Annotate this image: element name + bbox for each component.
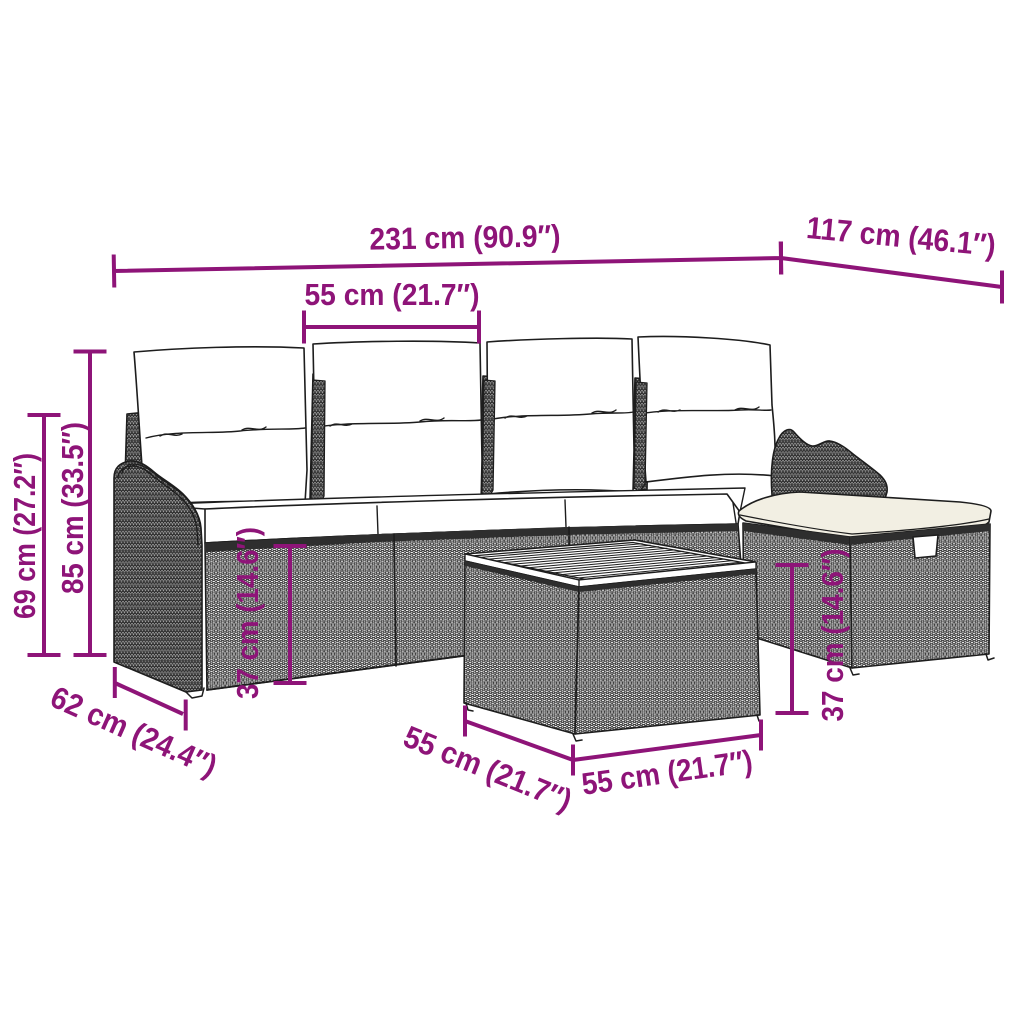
svg-text:231 cm (90.9″): 231 cm (90.9″) [369,218,561,256]
svg-text:55 cm (21.7″): 55 cm (21.7″) [305,277,480,312]
svg-text:69 cm (27.2″): 69 cm (27.2″) [7,453,42,619]
svg-text:85 cm (33.5″): 85 cm (33.5″) [55,422,90,594]
svg-text:37 cm (14.6″): 37 cm (14.6″) [815,549,850,722]
svg-text:37 cm (14.6″): 37 cm (14.6″) [230,527,265,699]
